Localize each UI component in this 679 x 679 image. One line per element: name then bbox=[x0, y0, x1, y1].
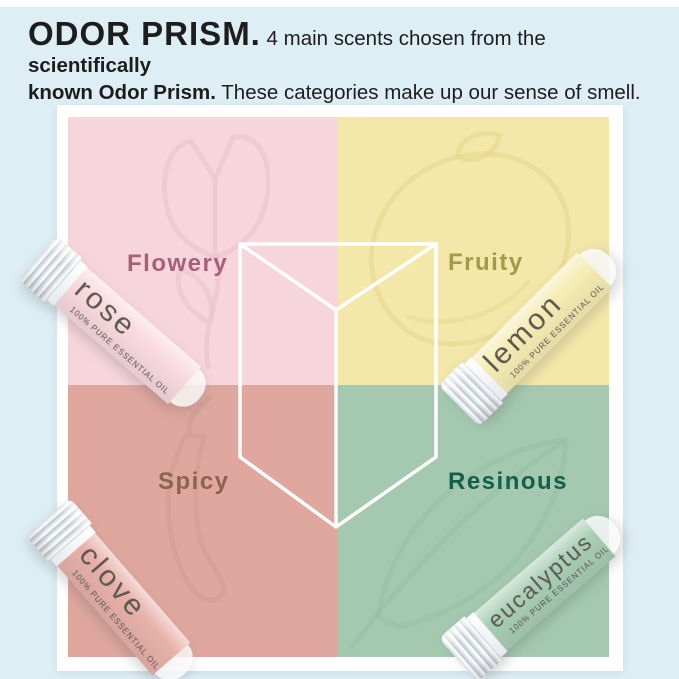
header-text: ODOR PRISM. 4 main scents chosen from th… bbox=[28, 20, 656, 106]
header-segment-bold: scientifically bbox=[28, 54, 151, 77]
odor-prism-infographic: ODOR PRISM. 4 main scents chosen from th… bbox=[0, 0, 679, 679]
page-title: ODOR PRISM. bbox=[28, 15, 261, 52]
quadrant-fruity: Fruity bbox=[338, 117, 609, 385]
header-segment: These categories make up our sense of sm… bbox=[216, 81, 641, 104]
header-segment-bold: known Odor Prism. bbox=[28, 81, 216, 104]
quadrant-label-resinous: Resinous bbox=[448, 468, 568, 496]
top-white-strip bbox=[0, 0, 679, 7]
quadrant-label-fruity: Fruity bbox=[448, 249, 524, 277]
quadrant-label-flowery: Flowery bbox=[127, 250, 228, 278]
header-segment: 4 main scents chosen from the bbox=[261, 27, 546, 50]
quadrant-label-spicy: Spicy bbox=[158, 468, 230, 496]
